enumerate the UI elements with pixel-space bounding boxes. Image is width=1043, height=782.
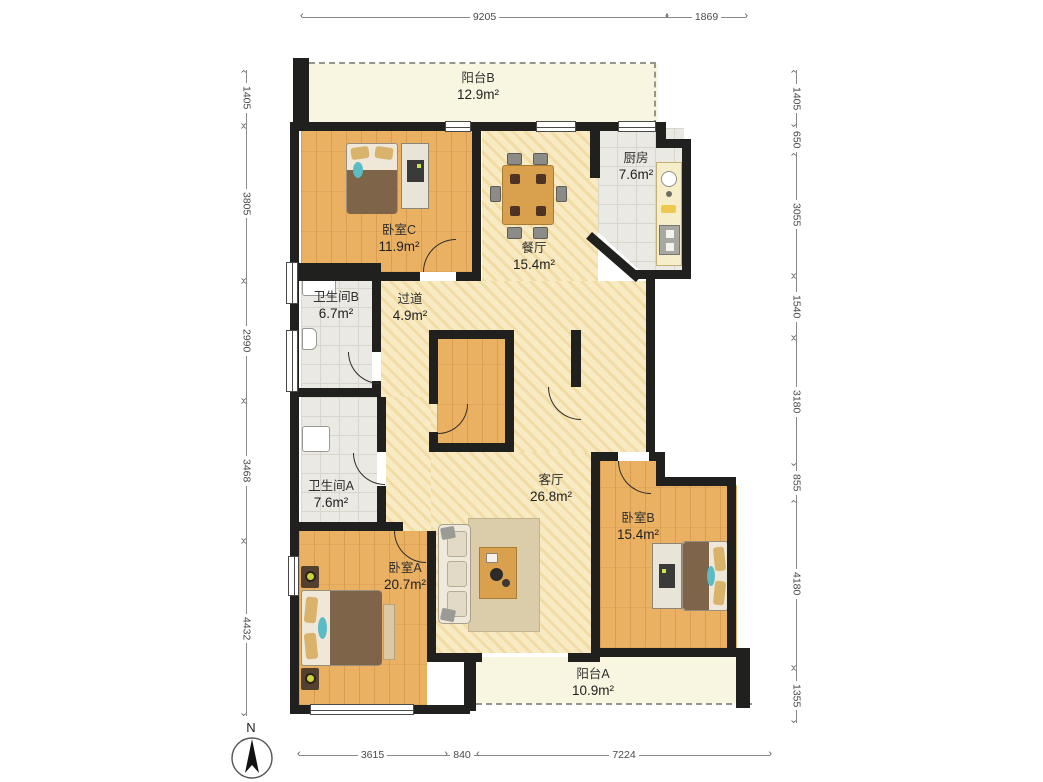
dimension-left-1: ‹ 3805 ›	[238, 126, 254, 281]
place-setting	[536, 206, 546, 216]
dimension-left-2: ‹ 2990 ›	[238, 281, 254, 401]
room-label-living: 客厅 26.8m²	[530, 472, 572, 506]
wall	[456, 272, 481, 281]
bed	[301, 590, 381, 666]
room-name: 卧室B	[617, 510, 659, 526]
indicator-dot	[417, 164, 421, 168]
room-name: 厨房	[619, 150, 654, 166]
room-label-bedroom-b: 卧室B 15.4m²	[617, 510, 659, 544]
arrow-up: ‹	[787, 153, 798, 157]
dining-table	[502, 165, 554, 225]
wall	[472, 131, 481, 281]
wall	[293, 388, 381, 397]
wall	[293, 272, 420, 281]
arrow-up: ‹	[237, 126, 248, 130]
dimension-right-7: ‹ 1355 ›	[788, 668, 804, 723]
room-name: 过道	[393, 291, 428, 307]
dining-chair	[533, 227, 548, 239]
arrow-up: ‹	[237, 401, 248, 405]
wall	[464, 655, 476, 711]
dimension-value: 1405	[241, 83, 252, 112]
wall	[682, 139, 691, 279]
throw-pillow	[353, 162, 363, 178]
throw-pillow	[318, 617, 327, 639]
room-area: 7.6m²	[619, 166, 654, 184]
wall	[505, 330, 514, 452]
room-area: 11.9m²	[378, 238, 419, 256]
dimension-top-0: ‹ 9205 ›	[303, 9, 666, 25]
dimension-right-2: ‹ 3055 ›	[788, 153, 804, 276]
room-area: 6.7m²	[313, 305, 359, 323]
pillow	[713, 580, 726, 605]
place-setting	[510, 206, 520, 216]
dining-chair	[490, 186, 501, 202]
wall	[646, 270, 655, 452]
arrow-left: ‹	[665, 11, 669, 22]
dimension-bottom-0: ‹ 3615 ›	[300, 747, 445, 763]
sink	[661, 171, 677, 187]
room-area: 7.6m²	[308, 494, 354, 512]
dimension-bottom-2: ‹ 7224 ›	[479, 747, 769, 763]
arrow-left: ‹	[300, 11, 304, 22]
pillow	[374, 146, 393, 160]
bed	[682, 541, 728, 611]
dimension-value: 3615	[358, 750, 387, 761]
dimension-bottom-1: 840	[445, 747, 479, 763]
room-area: 12.9m²	[457, 86, 499, 104]
room-name: 客厅	[530, 472, 572, 488]
dimension-value: 7224	[609, 750, 638, 761]
wardrobe	[652, 543, 682, 609]
room-name: 阳台A	[572, 666, 614, 682]
room-area: 20.7m²	[384, 576, 426, 594]
dimension-value: 3805	[241, 189, 252, 218]
window	[445, 121, 471, 132]
window	[286, 262, 298, 304]
throw-pillow	[707, 566, 715, 586]
burner	[666, 243, 674, 251]
room-label-bath-a: 卫生间A 7.6m²	[308, 478, 354, 512]
room-name: 卫生间A	[308, 478, 354, 494]
dining-chair	[507, 227, 522, 239]
arrow-down: ›	[237, 713, 248, 717]
window	[288, 556, 299, 596]
wall	[429, 443, 514, 452]
arrow-right: ›	[768, 749, 772, 760]
blanket	[683, 542, 709, 610]
dimension-left-0: ‹ 1405 ›	[238, 70, 254, 126]
wall	[293, 263, 381, 272]
wall	[736, 648, 750, 708]
faucet-dot	[666, 191, 672, 197]
window	[286, 330, 298, 392]
room-name: 卧室C	[378, 222, 419, 238]
dimension-value: 855	[791, 471, 802, 495]
blanket	[330, 591, 382, 665]
toilet	[302, 328, 317, 350]
north-arrow-icon	[229, 735, 275, 781]
dining-chair	[533, 153, 548, 165]
dimension-right-6: ‹ 4180 ›	[788, 500, 804, 668]
arrow-up: ‹	[237, 541, 248, 545]
corridor-floor	[386, 397, 431, 531]
room-name: 卧室A	[384, 560, 426, 576]
dimension-right-5: 855	[788, 466, 804, 500]
wall	[290, 122, 299, 714]
balcony-a-dashed-edge	[476, 703, 752, 705]
arrow-right: ›	[744, 11, 748, 22]
wall	[293, 522, 403, 531]
pillow	[304, 632, 319, 659]
sofa	[438, 524, 471, 624]
room-name: 阳台B	[457, 70, 499, 86]
dining-chair	[507, 153, 522, 165]
dimension-value: 2990	[241, 326, 252, 355]
stove	[659, 225, 680, 255]
dimension-value: 9205	[470, 12, 499, 23]
wall	[293, 58, 309, 128]
wall	[591, 452, 600, 657]
dimension-value: 1540	[791, 292, 802, 321]
dimension-right-1: 650	[788, 127, 804, 153]
room-area: 10.9m²	[572, 682, 614, 700]
dimension-value: 1405	[791, 84, 802, 113]
wall	[427, 531, 436, 662]
dimension-left-3: ‹ 3468 ›	[238, 401, 254, 541]
arrow-up: ‹	[787, 338, 798, 342]
room-area: 4.9m²	[393, 307, 428, 325]
dimension-value: 3180	[791, 387, 802, 416]
room-label-kitchen: 厨房 7.6m²	[619, 150, 654, 184]
dimension-right-3: ‹ 1540 ›	[788, 276, 804, 338]
room-area: 15.4m²	[513, 256, 555, 274]
room-label-bath-b: 卫生间B 6.7m²	[313, 289, 359, 323]
bowl	[502, 579, 510, 587]
wall	[727, 477, 736, 657]
teapot	[490, 568, 503, 581]
kitchen-counter	[656, 162, 682, 266]
arrow-up: ‹	[237, 70, 248, 74]
dimension-left-4: ‹ 4432 ›	[238, 541, 254, 716]
dimension-value: 4432	[241, 614, 252, 643]
wall	[429, 330, 514, 339]
room-area: 15.4m²	[617, 526, 659, 544]
room-area: 26.8m²	[530, 488, 572, 506]
dimension-value: 650	[791, 128, 802, 152]
arrow-down: ›	[787, 720, 798, 724]
pillow	[350, 146, 369, 160]
sofa-pillow	[440, 608, 456, 623]
dining-chair	[556, 186, 567, 202]
pillow	[713, 546, 726, 571]
wall	[429, 330, 438, 404]
coffee-table	[479, 547, 517, 599]
room-name: 餐厅	[513, 240, 555, 256]
dimension-value: 1869	[692, 12, 721, 23]
bed	[346, 143, 398, 213]
indicator-dot	[662, 569, 666, 573]
wall	[590, 128, 600, 178]
tv-unit	[407, 160, 424, 182]
lamp	[305, 673, 316, 684]
room-label-balcony-a: 阳台A 10.9m²	[572, 666, 614, 700]
dimension-value: 4180	[791, 569, 802, 598]
room-label-bedroom-a: 卧室A 20.7m²	[384, 560, 426, 594]
dimension-right-4: ‹ 3180 ›	[788, 338, 804, 466]
arrow-up: ‹	[787, 70, 798, 74]
room-name: 卫生间B	[313, 289, 359, 305]
north-label: N	[246, 720, 255, 735]
window	[310, 704, 414, 715]
wall	[591, 648, 736, 657]
dimension-right-0: ‹ 1405 ›	[788, 70, 804, 127]
nightstand	[301, 566, 319, 588]
room-label-hallway: 过道 4.9m²	[393, 291, 428, 325]
sofa-pillow	[440, 526, 456, 540]
dimension-value: 3468	[241, 456, 252, 485]
burner	[666, 230, 674, 238]
wall	[290, 122, 666, 131]
dimension-value: 840	[450, 750, 474, 761]
place-setting	[536, 174, 546, 184]
wall	[377, 397, 386, 452]
room-label-bedroom-c: 卧室C 11.9m²	[378, 222, 419, 256]
wardrobe	[401, 143, 429, 209]
arrow-up: ‹	[787, 276, 798, 280]
tv-unit	[659, 564, 675, 588]
place-setting	[510, 174, 520, 184]
floor-plan: 阳台B 12.9m² 卧室C 11.9m² 餐厅 15.4m² 厨房 7.6m²…	[0, 0, 1043, 782]
tray	[486, 553, 498, 563]
arrow-up: ‹	[787, 500, 798, 504]
arrow-left: ‹	[297, 749, 301, 760]
wall	[372, 263, 381, 352]
arrow-up: ‹	[787, 668, 798, 672]
wall	[571, 330, 581, 387]
nightstand	[301, 668, 319, 690]
room-label-dining: 餐厅 15.4m²	[513, 240, 555, 274]
lamp	[305, 571, 316, 582]
window	[536, 121, 576, 132]
cutting-board	[661, 205, 676, 213]
pillow	[304, 596, 319, 623]
dimension-value: 1355	[791, 681, 802, 710]
arrow-left: ‹	[476, 749, 480, 760]
dimension-top-1: ‹ 1869 ›	[668, 9, 745, 25]
bed-bench	[383, 604, 395, 660]
room-label-balcony-b: 阳台B 12.9m²	[457, 70, 499, 104]
window	[618, 121, 656, 132]
arrow-up: ‹	[237, 281, 248, 285]
washbasin	[302, 426, 330, 452]
dimension-value: 3055	[791, 200, 802, 229]
wall	[656, 477, 736, 486]
sofa-cushion	[447, 561, 467, 587]
